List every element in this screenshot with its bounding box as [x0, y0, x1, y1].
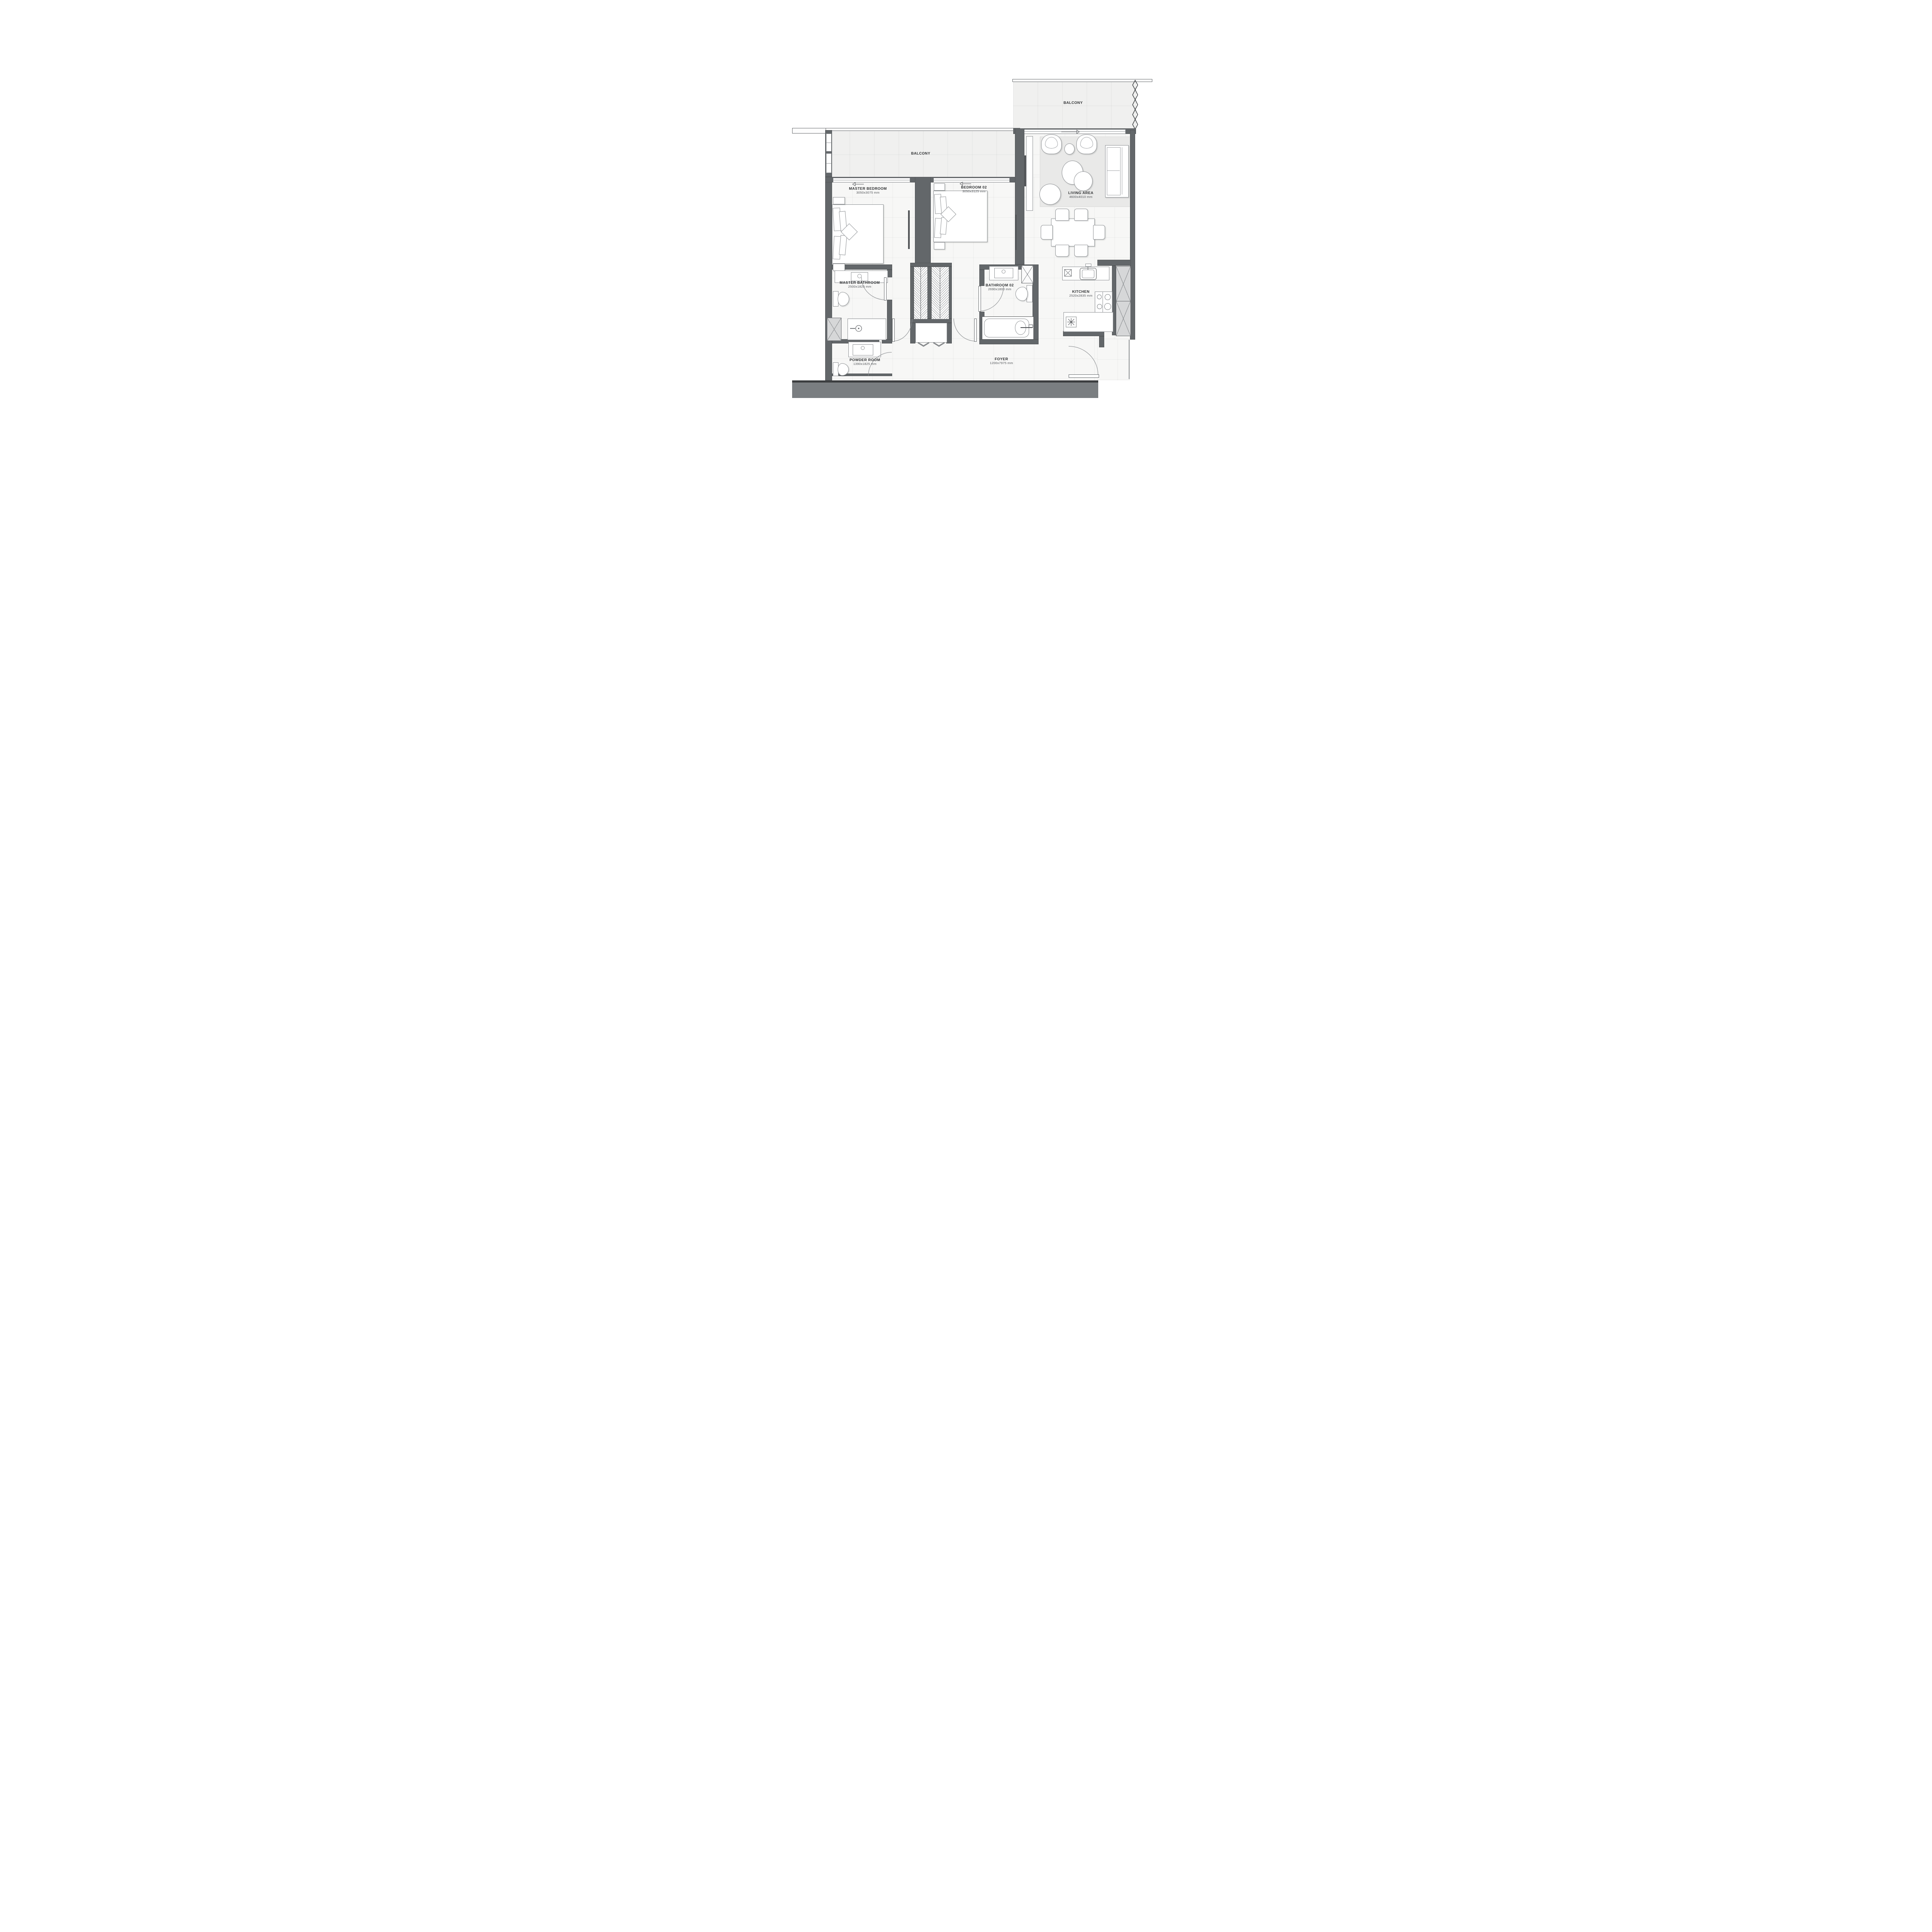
powder-faucet-icon: [861, 346, 865, 350]
label-master-bedroom: MASTER BEDROOM 3050x3075 mm: [849, 186, 887, 194]
master-bath-faucet-icon: [857, 274, 862, 278]
floor-drain-icon: [1064, 269, 1072, 276]
dining-table: [1051, 219, 1095, 246]
shaft-kitchen-upper: [1116, 266, 1131, 302]
living-tv-console: [1026, 136, 1033, 211]
floor-plan: BALCONY BALCONY MASTER BEDROOM 3050x3075…: [725, 0, 1208, 483]
label-kitchen: KITCHEN 2520x2835 mm: [1069, 289, 1092, 298]
living-ottoman: [1064, 143, 1075, 155]
living-coffee-table-small: [1074, 171, 1093, 191]
label-foyer: FOYER 1200x7975 mm: [990, 357, 1013, 365]
dining-chair: [1041, 225, 1053, 240]
kitchen-sink-basin: [1082, 270, 1094, 278]
master-bath-door-leaf: [884, 277, 887, 301]
bath02-door-leaf: [978, 286, 981, 312]
wall-bath02-left-a: [979, 270, 984, 286]
wall-entry-step: [1099, 336, 1104, 347]
living-sofa: [1105, 145, 1129, 197]
bath02-tub: [982, 316, 1034, 340]
wall-wardrobe-top: [910, 263, 952, 267]
label-powder-room: POWDER ROOM 1390x1825 mm: [850, 358, 880, 366]
master-bedroom-door-leaf: [892, 319, 895, 342]
dining-chair: [1055, 209, 1069, 221]
hall-closet: [915, 323, 947, 343]
dining-chair: [1055, 245, 1069, 257]
wall-bedroom-divider: [915, 177, 931, 264]
refrigeration-snowflake-icon: [1066, 316, 1077, 328]
window-master-bedroom: [833, 178, 910, 182]
privacy-screen-zigzag-icon: [1131, 80, 1139, 129]
entry-side-line: [1129, 340, 1130, 379]
bedroom02-nightstand-top: [934, 183, 945, 191]
wall-bath02-bottom: [979, 339, 1039, 344]
master-nightstand-top: [833, 197, 845, 204]
entry-door-leaf: [1069, 374, 1099, 378]
wardrobe-bedroom02: [931, 267, 949, 319]
kitchen-stove: [1095, 292, 1112, 313]
balcony-living-railing: [825, 128, 1020, 131]
master-tv: [908, 210, 910, 249]
living-pouf: [1039, 184, 1061, 205]
structure-band-bottom: [792, 383, 1098, 398]
kitchen-faucet-base: [1085, 264, 1091, 267]
label-bedroom-02: BEDROOM 02 3050x3125 mm: [961, 185, 987, 193]
closet-door-swing-icon: [917, 342, 930, 347]
label-balcony-living: BALCONY: [911, 151, 930, 155]
wall-kitchen-top: [1097, 260, 1131, 266]
window-balcony-left-1: [826, 134, 832, 152]
shaft-master-bath: [827, 318, 841, 341]
bath02-faucet-icon: [1002, 270, 1005, 273]
label-balcony-main: BALCONY: [1063, 100, 1083, 105]
living-armchair: [1041, 134, 1062, 154]
balcony-railing-extension: [792, 128, 826, 134]
label-bathroom-02: BATHROOM 02 2690x1800 mm: [986, 283, 1014, 291]
master-nightstand-bottom: [833, 264, 845, 271]
bedroom02-nightstand-bottom: [934, 242, 945, 249]
dining-chair: [1074, 245, 1088, 257]
slider-arrow-icon: [1060, 129, 1079, 134]
living-tv: [1024, 155, 1026, 186]
wall-wardrobe-left: [910, 267, 914, 319]
shaft-bathroom02: [1021, 265, 1033, 283]
balcony-main-floor: [1013, 81, 1136, 129]
bedroom02-tv: [1015, 215, 1017, 250]
bedroom02-door-leaf: [974, 319, 977, 342]
label-master-bathroom: MASTER BATHROOM 2500x1825 mm: [840, 280, 880, 289]
dining-chair: [1093, 225, 1105, 240]
wall-exterior-left: [825, 177, 832, 380]
living-armchair: [1076, 134, 1097, 154]
wardrobe-master: [914, 267, 928, 319]
closet-door-swing-icon: [933, 342, 945, 347]
shower-head-icon: [850, 325, 866, 332]
wall-master-bath-right-b: [887, 300, 892, 343]
window-balcony-left-2: [826, 153, 832, 173]
slider-arrow-icon: [853, 182, 865, 186]
label-living-area: LIVING AREA 4600x4010 mm: [1068, 191, 1094, 199]
shaft-kitchen-lower: [1116, 301, 1131, 336]
dining-chair: [1074, 209, 1088, 221]
